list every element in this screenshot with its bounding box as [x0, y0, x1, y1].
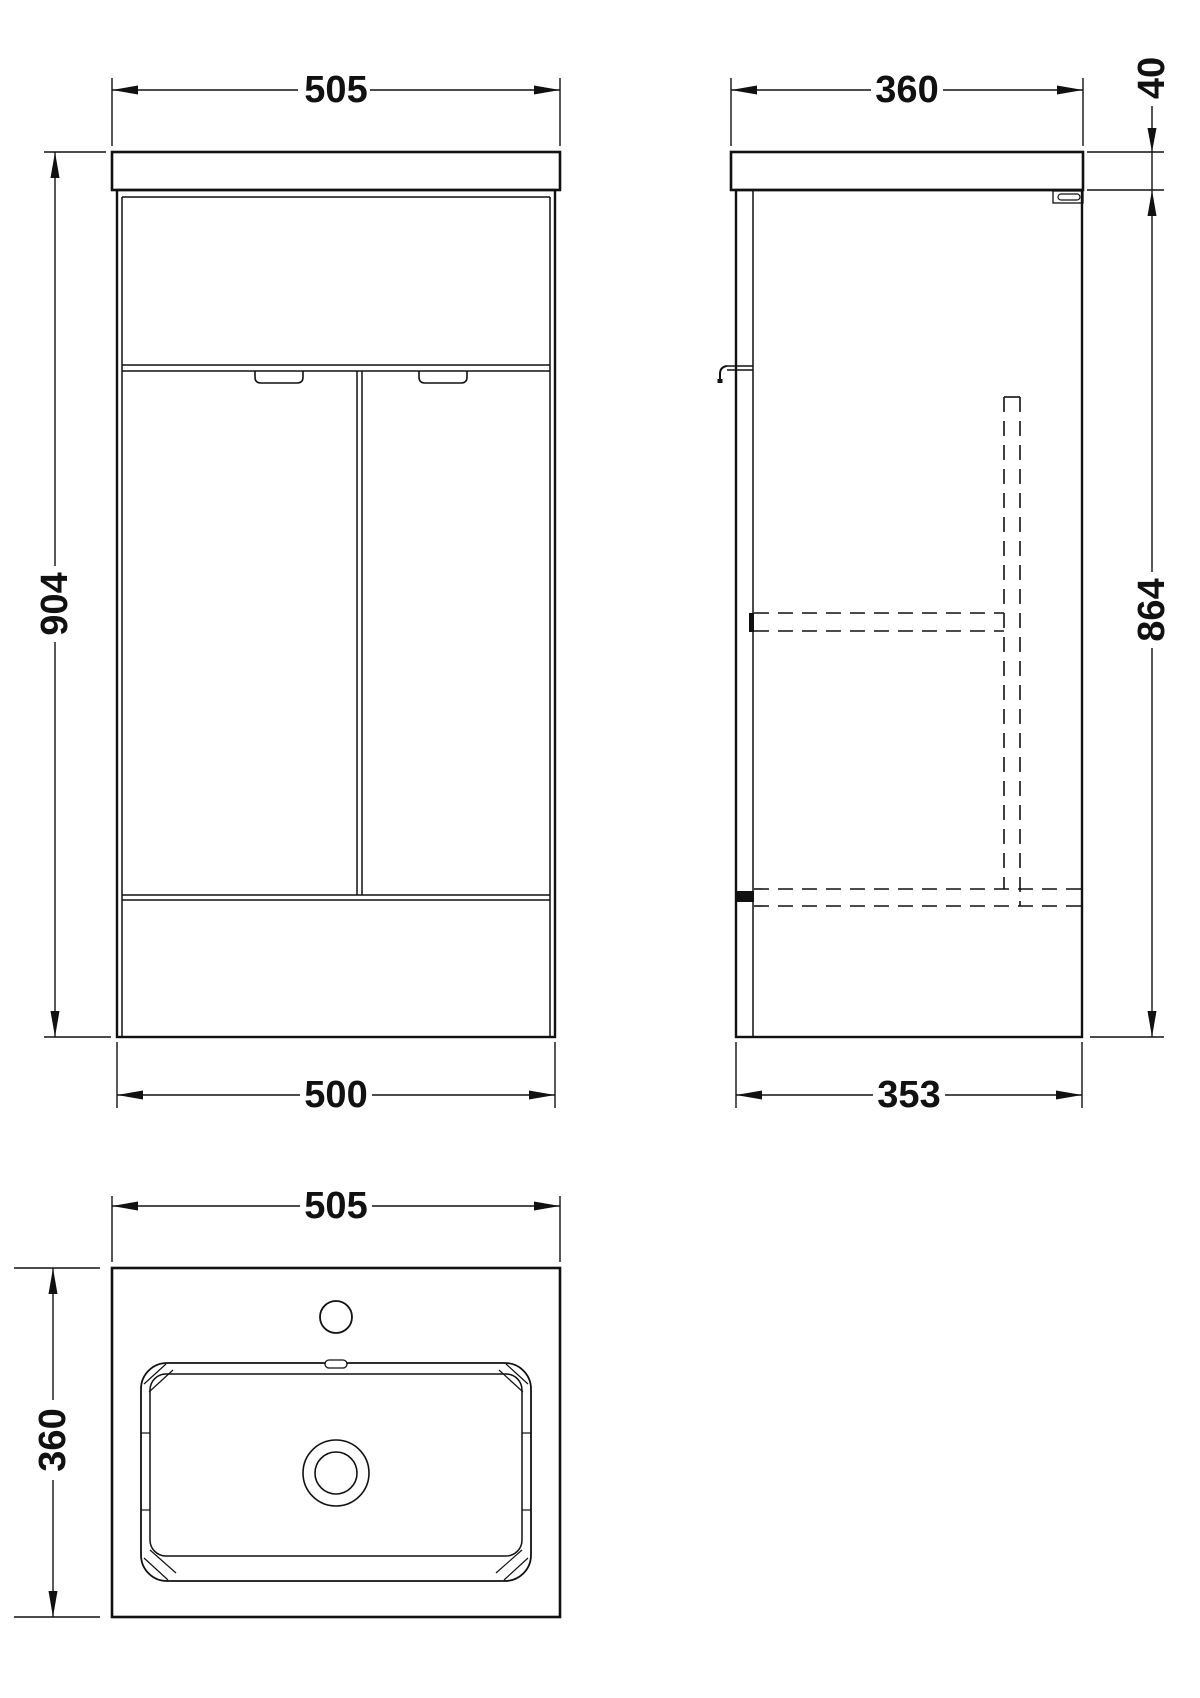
- front-dim-width-bottom: 500: [117, 1042, 555, 1116]
- side-worktop-thickness-value: 40: [1131, 57, 1173, 99]
- side-cabinet-height-value: 864: [1131, 578, 1173, 641]
- plan-basin: [141, 1360, 531, 1581]
- front-width-top-value: 505: [304, 69, 367, 111]
- plan-overflow-slot: [325, 1360, 347, 1368]
- plan-view-outline: [112, 1268, 560, 1617]
- side-dim-depth-bottom: 353: [736, 1042, 1082, 1116]
- front-view-outline: [112, 152, 560, 1037]
- side-dim-cabinet-height: 864: [1131, 190, 1173, 1037]
- plan-tap-hole: [320, 1301, 352, 1333]
- side-depth-top-value: 360: [875, 69, 938, 111]
- plan-drain-outer: [303, 1440, 369, 1506]
- side-wall-bracket: [1053, 191, 1083, 203]
- side-depth-bottom-value: 353: [877, 1074, 940, 1116]
- front-doors: [122, 371, 550, 900]
- side-view-outline: [718, 152, 1084, 1037]
- plan-depth-value: 360: [32, 1408, 74, 1471]
- plan-worktop: [112, 1268, 560, 1617]
- front-dim-width-top: 505: [112, 69, 560, 146]
- side-dim-depth-top: 360: [731, 69, 1083, 146]
- front-right-door-handle: [419, 371, 467, 383]
- front-width-bottom-value: 500: [304, 1074, 367, 1116]
- front-worktop: [112, 152, 560, 190]
- side-shelf-edge: [749, 613, 754, 632]
- side-hidden-lines: [754, 397, 1082, 906]
- front-height-value: 904: [34, 572, 76, 635]
- plan-dim-depth: 360: [14, 1268, 100, 1617]
- plan-view: 505 360: [14, 1185, 560, 1617]
- technical-drawing-sheet: 505 904 500: [0, 0, 1200, 1698]
- plan-dim-width: 505: [112, 1185, 560, 1262]
- front-view: 505 904 500: [34, 69, 560, 1116]
- side-worktop: [731, 152, 1083, 190]
- side-dim-worktop-thickness: 40: [1131, 57, 1173, 190]
- front-dim-height: 904: [34, 152, 111, 1037]
- side-view: 360 40 864: [718, 57, 1174, 1116]
- front-left-door-handle: [255, 371, 303, 383]
- front-cabinet: [117, 190, 555, 1037]
- plan-drain-inner: [315, 1452, 357, 1494]
- plan-width-value: 505: [304, 1185, 367, 1227]
- side-door-bottom-edge: [736, 891, 754, 902]
- front-drawer-front: [122, 365, 550, 371]
